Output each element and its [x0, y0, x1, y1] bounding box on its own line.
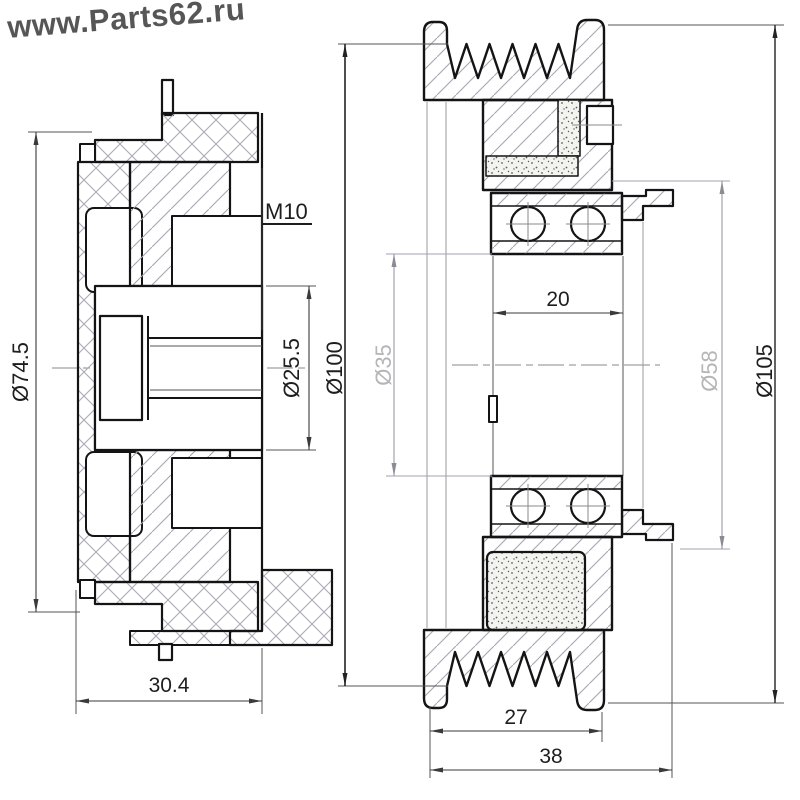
- arrow-right: [589, 729, 602, 734]
- bearing-race: [491, 241, 622, 254]
- dim-label-width: 30.4: [149, 674, 190, 697]
- arrow-left: [430, 768, 443, 773]
- arrow-down: [343, 673, 348, 686]
- pulley-groove-rim-bottom: [424, 630, 604, 710]
- arrow-down: [34, 599, 39, 612]
- dim-label-groove-diameter: Ø100: [322, 341, 347, 395]
- arrow-right: [659, 768, 672, 773]
- dim-label-bore-diameter: Ø35: [371, 344, 396, 386]
- hub-recess-bottom: [172, 458, 262, 528]
- hub-top-notch: [80, 144, 95, 162]
- technical-drawing-page: www.Parts62.ru: [0, 0, 800, 800]
- dim-label-thread: M10: [265, 199, 308, 224]
- rubber-damper-top: [558, 100, 580, 156]
- hub-bottom-step: [130, 631, 230, 645]
- rubber-damper-block: [487, 552, 585, 630]
- left-view: Ø74.5 M10 Ø25.5 30.4: [8, 80, 332, 714]
- arrow-left: [430, 729, 443, 734]
- dim-label-bearing-width: 20: [546, 288, 569, 311]
- arrow-up: [773, 25, 778, 38]
- hub-bottom-tab: [159, 644, 172, 660]
- technical-drawing-canvas: Ø74.5 M10 Ø25.5 30.4: [0, 0, 800, 800]
- arrow-left: [76, 699, 89, 704]
- arrow-down: [392, 463, 397, 476]
- hub-bottom-notch: [80, 580, 95, 598]
- hub-bottom-rim: [95, 582, 258, 631]
- arrow-up: [343, 44, 348, 57]
- bearing-bottom: [491, 476, 622, 537]
- bearing-race: [491, 193, 622, 206]
- mount-flange-bottom: [622, 510, 673, 540]
- hub-shaft: [148, 338, 262, 398]
- keyway-mark: [489, 396, 497, 422]
- hub-top-rim: [95, 113, 258, 162]
- arrow-right: [249, 699, 262, 704]
- right-view: Ø100 Ø35 20 Ø58: [322, 20, 784, 778]
- arrow-up: [720, 181, 725, 194]
- rubber-damper-band: [486, 156, 578, 176]
- arrow-right: [610, 311, 623, 316]
- dim-label-overall-width: 38: [539, 745, 562, 768]
- hub-recess-top: [172, 216, 262, 286]
- arrow-up: [34, 132, 39, 145]
- pulley-groove-rim-top: [424, 20, 604, 100]
- dim-label-outer-diameter: Ø105: [752, 344, 777, 398]
- arrow-up: [307, 286, 312, 299]
- arrow-up: [392, 254, 397, 267]
- dim-label-outer-diameter: Ø74.5: [8, 342, 33, 402]
- bearing-top: [491, 193, 622, 254]
- bearing-race: [491, 476, 622, 489]
- arrow-left: [493, 311, 506, 316]
- hub-nut: [100, 316, 142, 420]
- bearing-race: [491, 524, 622, 537]
- dim-label-hub-diameter: Ø58: [697, 350, 722, 392]
- dim-label-belt-width: 27: [504, 706, 527, 729]
- mount-flange-top: [622, 190, 673, 220]
- dim-label-bore: Ø25.5: [279, 338, 304, 398]
- hub-top-tab: [162, 80, 173, 115]
- arrow-down: [307, 437, 312, 450]
- arrow-down: [773, 690, 778, 703]
- arrow-down: [720, 536, 725, 549]
